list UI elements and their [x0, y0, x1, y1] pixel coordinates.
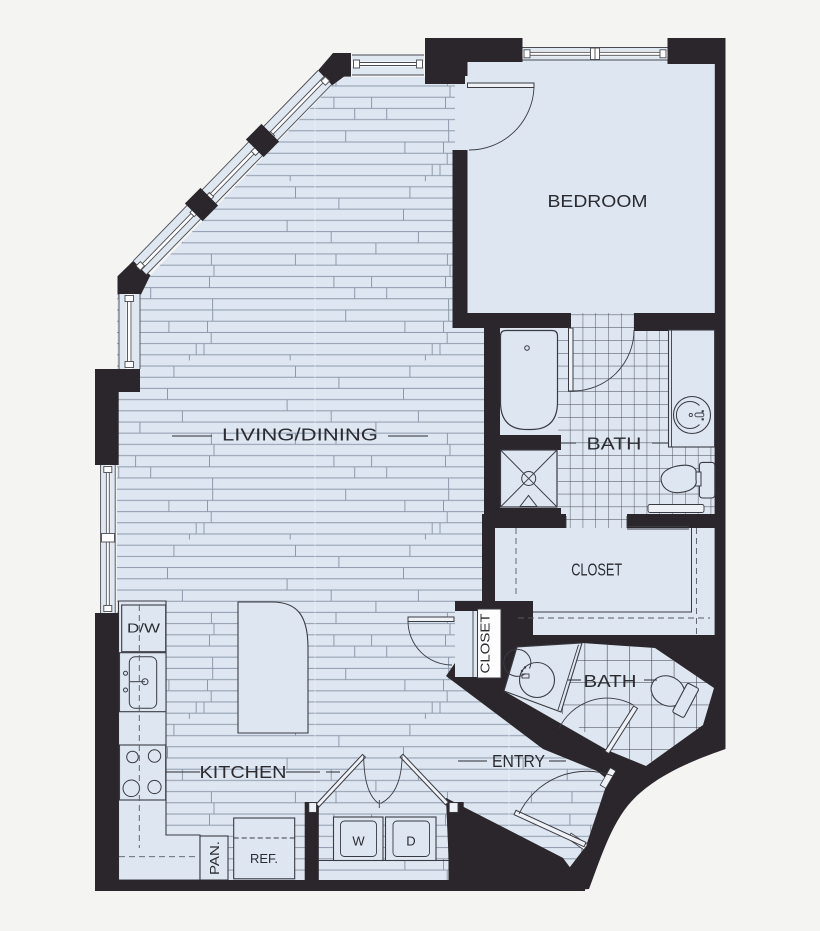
svg-text:REF.: REF.: [250, 851, 278, 866]
svg-text:BEDROOM: BEDROOM: [548, 191, 648, 211]
svg-text:D/W: D/W: [127, 621, 161, 636]
svg-text:ENTRY: ENTRY: [492, 751, 545, 771]
svg-text:LIVING/DINING: LIVING/DINING: [222, 425, 378, 445]
svg-text:KITCHEN: KITCHEN: [200, 762, 287, 782]
svg-text:BATH: BATH: [584, 671, 637, 691]
svg-text:W: W: [352, 834, 365, 849]
svg-text:PAN.: PAN.: [207, 841, 222, 875]
svg-text:BATH: BATH: [587, 434, 642, 454]
svg-text:D: D: [406, 834, 415, 849]
svg-text:CLOSET: CLOSET: [478, 613, 493, 673]
svg-text:CLOSET: CLOSET: [571, 560, 622, 580]
